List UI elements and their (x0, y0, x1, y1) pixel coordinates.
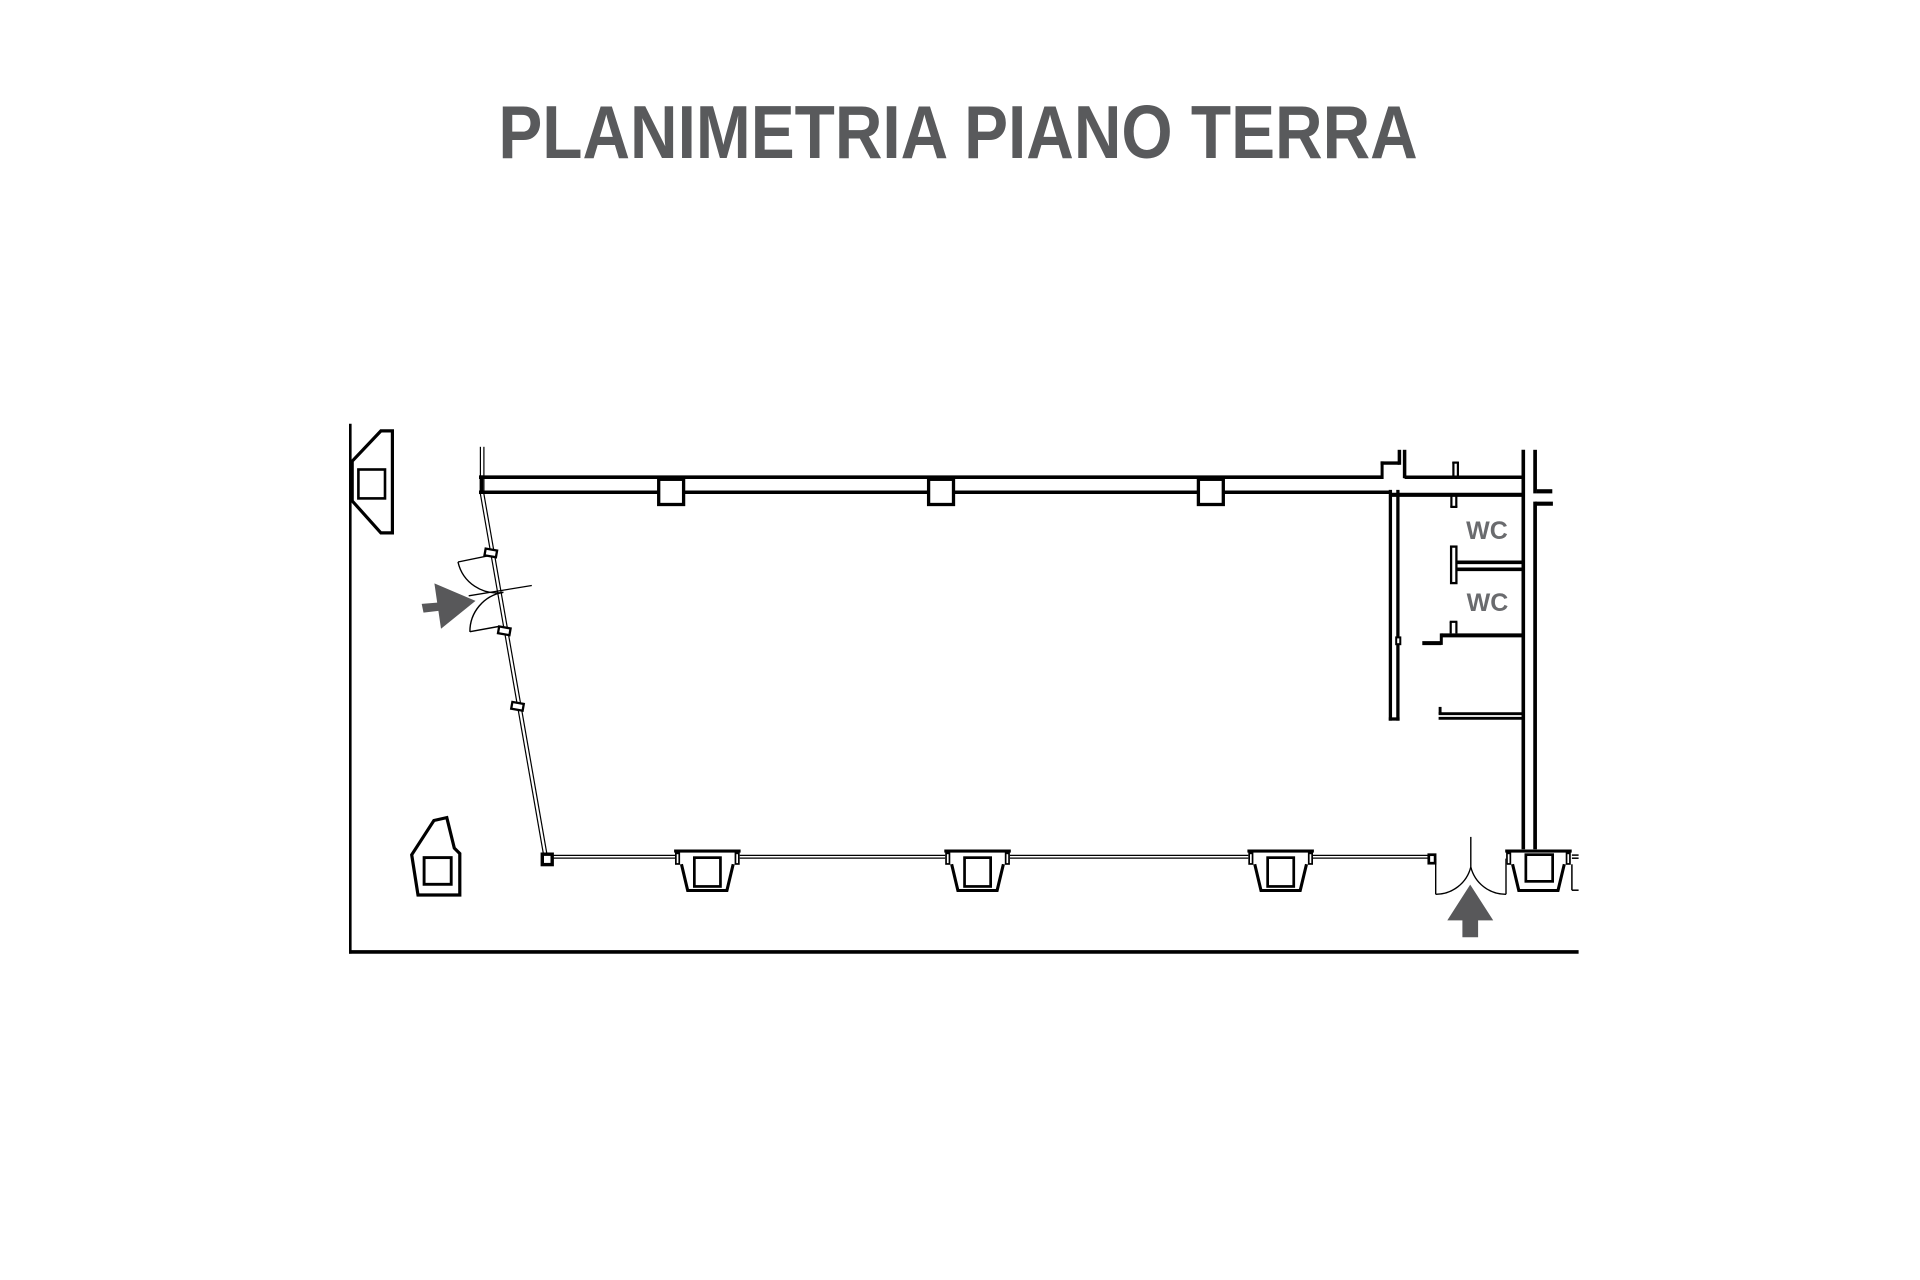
svg-text:WC: WC (1467, 589, 1509, 617)
svg-text:WC: WC (1466, 517, 1508, 545)
svg-text:PLANIMETRIA PIANO TERRA: PLANIMETRIA PIANO TERRA (498, 90, 1417, 174)
